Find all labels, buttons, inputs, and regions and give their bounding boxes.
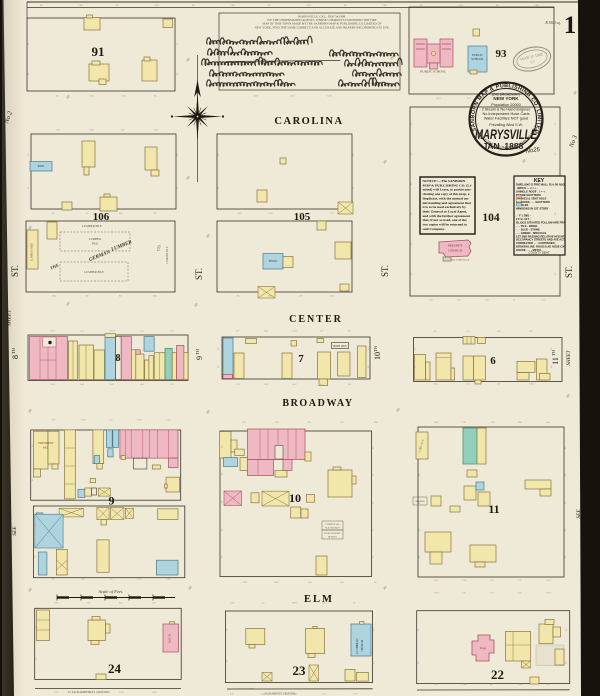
svg-text:WINDOWS IN 1ST STORY: WINDOWS IN 1ST STORY — [516, 207, 549, 211]
svg-text:2607: 2607 — [230, 602, 236, 605]
svg-text:11: 11 — [551, 357, 560, 365]
svg-text:1302: 1302 — [292, 693, 298, 696]
svg-text:1302: 1302 — [306, 4, 312, 7]
svg-text:1302: 1302 — [230, 4, 236, 7]
svg-text:PUBLIC SCHOOL: PUBLIC SCHOOL — [419, 70, 446, 74]
svg-text:M.E.CH.: M.E.CH. — [169, 633, 172, 643]
svg-text:SEE: SEE — [576, 509, 582, 519]
svg-text:1302: 1302 — [121, 95, 127, 98]
svg-text:ELM: ELM — [304, 594, 334, 605]
svg-text:9: 9 — [109, 494, 115, 508]
svg-text:2607: 2607 — [436, 97, 442, 100]
svg-text:M.E.CHURCH: M.E.CHURCH — [325, 527, 340, 530]
svg-text:1302: 1302 — [81, 419, 87, 422]
svg-text:2607: 2607 — [264, 383, 270, 386]
svg-text:1302: 1302 — [50, 383, 56, 386]
svg-text:1302: 1302 — [462, 579, 468, 582]
svg-text:11: 11 — [488, 502, 499, 516]
svg-text:(B'LD'G): (B'LD'G) — [328, 536, 337, 539]
svg-text:TH: TH — [11, 347, 16, 354]
svg-text:BL.DGS SITUATED FOLLOW ARE F: BL.DGS SITUATED FOLLOW ARE FRAMES — [516, 220, 571, 224]
svg-text:SHEET: SHEET — [7, 309, 13, 326]
svg-text:2607: 2607 — [152, 691, 158, 694]
svg-text:- . - TILE - BRICK: - . - TILE - BRICK — [516, 224, 538, 228]
svg-text:1302: 1302 — [268, 212, 274, 215]
svg-text:1302: 1302 — [89, 95, 95, 98]
svg-text:1: 1 — [564, 12, 577, 39]
svg-text:2607: 2607 — [274, 581, 280, 584]
svg-text:SHINGLE ROOF . ⌷ = + .: SHINGLE ROOF . ⌷ = + . — [516, 189, 547, 193]
svg-text:1302: 1302 — [137, 578, 143, 581]
svg-text:93: 93 — [496, 48, 508, 60]
svg-text:1302: 1302 — [541, 299, 547, 302]
svg-text:CAROLINA: CAROLINA — [274, 116, 343, 127]
svg-text:1302: 1302 — [166, 419, 172, 422]
svg-text:2607: 2607 — [54, 602, 60, 605]
svg-text:PRESBY'N: PRESBY'N — [447, 244, 464, 248]
svg-text:9: 9 — [195, 356, 204, 360]
svg-text:2 F B. 1ST -: 2 F B. 1ST - — [516, 217, 531, 221]
svg-text:LUMBER PILE: LUMBER PILE — [84, 270, 104, 274]
svg-text:COUNTY SEAT: COUNTY SEAT — [528, 251, 550, 255]
svg-text:7: 7 — [298, 353, 304, 365]
svg-text:SEE: SEE — [12, 526, 18, 536]
svg-text:B 3000 sq.: B 3000 sq. — [545, 21, 560, 25]
svg-text:TH: TH — [195, 348, 200, 355]
svg-text:2607: 2607 — [518, 683, 524, 686]
svg-text:LUMBER PILE: LUMBER PILE — [166, 246, 169, 263]
svg-text:2607: 2607 — [290, 95, 296, 98]
svg-text:2607: 2607 — [434, 421, 440, 424]
svg-text:24: 24 — [108, 661, 122, 676]
svg-text:LUTHERAN: LUTHERAN — [356, 638, 359, 653]
svg-text:. - F 1 2ND -: . - F 1 2ND - — [516, 214, 531, 218]
svg-text:TH: TH — [373, 345, 378, 352]
svg-text:FREMONT: FREMONT — [38, 441, 53, 445]
svg-text:2607: 2607 — [546, 579, 552, 582]
svg-text:LUMBER PILE: LUMBER PILE — [82, 224, 102, 228]
svg-text:1302: 1302 — [154, 4, 160, 7]
svg-text:1302: 1302 — [462, 683, 468, 686]
svg-text:1302: 1302 — [89, 129, 95, 132]
svg-text:No Independent Hose Carts: No Independent Hose Carts — [482, 112, 529, 116]
svg-text:IRON WKS: IRON WKS — [333, 345, 347, 348]
svg-text:10: 10 — [289, 491, 301, 505]
svg-text:1302: 1302 — [529, 97, 535, 100]
svg-text:Dwg.: Dwg. — [479, 646, 487, 650]
svg-text:23: 23 — [293, 663, 307, 678]
svg-text:BROADWAY: BROADWAY — [282, 398, 353, 409]
svg-text:8: 8 — [116, 353, 121, 364]
svg-text:RINK: RINK — [38, 165, 45, 168]
svg-text:PHOTO: PHOTO — [269, 260, 278, 263]
svg-text:2607: 2607 — [485, 299, 491, 302]
svg-text:2607: 2607 — [429, 299, 435, 302]
svg-text:1302: 1302 — [353, 693, 359, 696]
svg-text:REV. PARSONAGE: REV. PARSONAGE — [451, 259, 470, 262]
svg-text:1ST 2ND PASSING RELATIVE HE: 1ST 2ND PASSING RELATIVE HEIGHTS — [516, 234, 566, 238]
svg-text:2607: 2607 — [292, 602, 298, 605]
svg-text:said Company.: said Company. — [423, 227, 446, 231]
svg-text:ST.: ST. — [194, 268, 204, 280]
svg-text:10: 10 — [373, 352, 382, 360]
svg-text:ST.: ST. — [380, 265, 390, 277]
svg-text:Water Facilities NOT good: Water Facilities NOT good — [484, 117, 528, 121]
svg-text:91: 91 — [92, 44, 105, 59]
svg-text:8: 8 — [11, 355, 20, 359]
svg-text:1302: 1302 — [253, 95, 259, 98]
svg-text:1302: 1302 — [490, 421, 496, 424]
svg-text:2 Steam & No Hand Engines: 2 Steam & No Hand Engines — [482, 108, 531, 112]
svg-text:1302: 1302 — [237, 212, 243, 215]
svg-text:HO.: HO. — [43, 446, 49, 450]
svg-text:- . - GREEN - SPECIALS: - . - GREEN - SPECIALS — [516, 231, 546, 235]
svg-text:OCCUPANCY STREETS AND AVE: OCCUPANCY STREETS AND AVE ACTUAL — [516, 238, 571, 242]
svg-text:SHEET: SHEET — [567, 349, 572, 365]
svg-text:104: 104 — [482, 212, 500, 224]
svg-text:1302: 1302 — [529, 383, 535, 386]
svg-text:22: 22 — [491, 667, 504, 682]
svg-text:1302: 1302 — [166, 578, 172, 581]
svg-text:1302: 1302 — [137, 419, 143, 422]
svg-text:CORRECTED - . - CONTINUED: CORRECTED - . - CONTINUED — [516, 241, 555, 245]
svg-text:CHURCH: CHURCH — [361, 640, 364, 652]
svg-text:1302: 1302 — [119, 691, 125, 694]
svg-text:ST.: ST. — [564, 266, 574, 278]
svg-text:1302: 1302 — [382, 4, 388, 7]
svg-text:1302: 1302 — [87, 691, 93, 694]
svg-text:2607: 2607 — [434, 592, 440, 595]
svg-text:1302: 1302 — [292, 330, 298, 333]
svg-text:2607: 2607 — [54, 691, 60, 694]
svg-text:LUMBER SHED: LUMBER SHED — [31, 243, 34, 261]
svg-text:2607: 2607 — [546, 592, 552, 595]
svg-text:1302: 1302 — [242, 581, 248, 584]
svg-text:PILE: PILE — [92, 242, 99, 246]
svg-text:- . - BLUE - STONE: - . - BLUE - STONE — [516, 227, 540, 231]
svg-text:2607: 2607 — [50, 330, 56, 333]
svg-text:. BRICK — x ⌷ + -: . BRICK — x ⌷ + - — [516, 186, 538, 190]
svg-text:ST.: ST. — [10, 265, 20, 277]
svg-text:2607: 2607 — [292, 383, 298, 386]
svg-text:2607: 2607 — [110, 330, 116, 333]
svg-text:1302: 1302 — [274, 421, 280, 424]
svg-text:DWELLING D FIRE WALL R.H.: DWELLING D FIRE WALL R.H. 26 ABOV — [516, 183, 567, 187]
svg-text:LUMBER: LUMBER — [89, 237, 102, 241]
svg-text:SCHOOL: SCHOOL — [471, 57, 484, 61]
svg-text:CHURCH: CHURCH — [448, 249, 462, 253]
svg-text:1302: 1302 — [327, 95, 333, 98]
svg-text:1302: 1302 — [78, 4, 84, 7]
svg-text:CENTER: CENTER — [289, 314, 343, 325]
svg-text:6: 6 — [490, 355, 496, 367]
svg-text:1302: 1302 — [268, 295, 274, 298]
svg-text:Scale of Feet.: Scale of Feet. — [99, 589, 124, 594]
svg-text:Population 20000: Population 20000 — [491, 103, 521, 107]
